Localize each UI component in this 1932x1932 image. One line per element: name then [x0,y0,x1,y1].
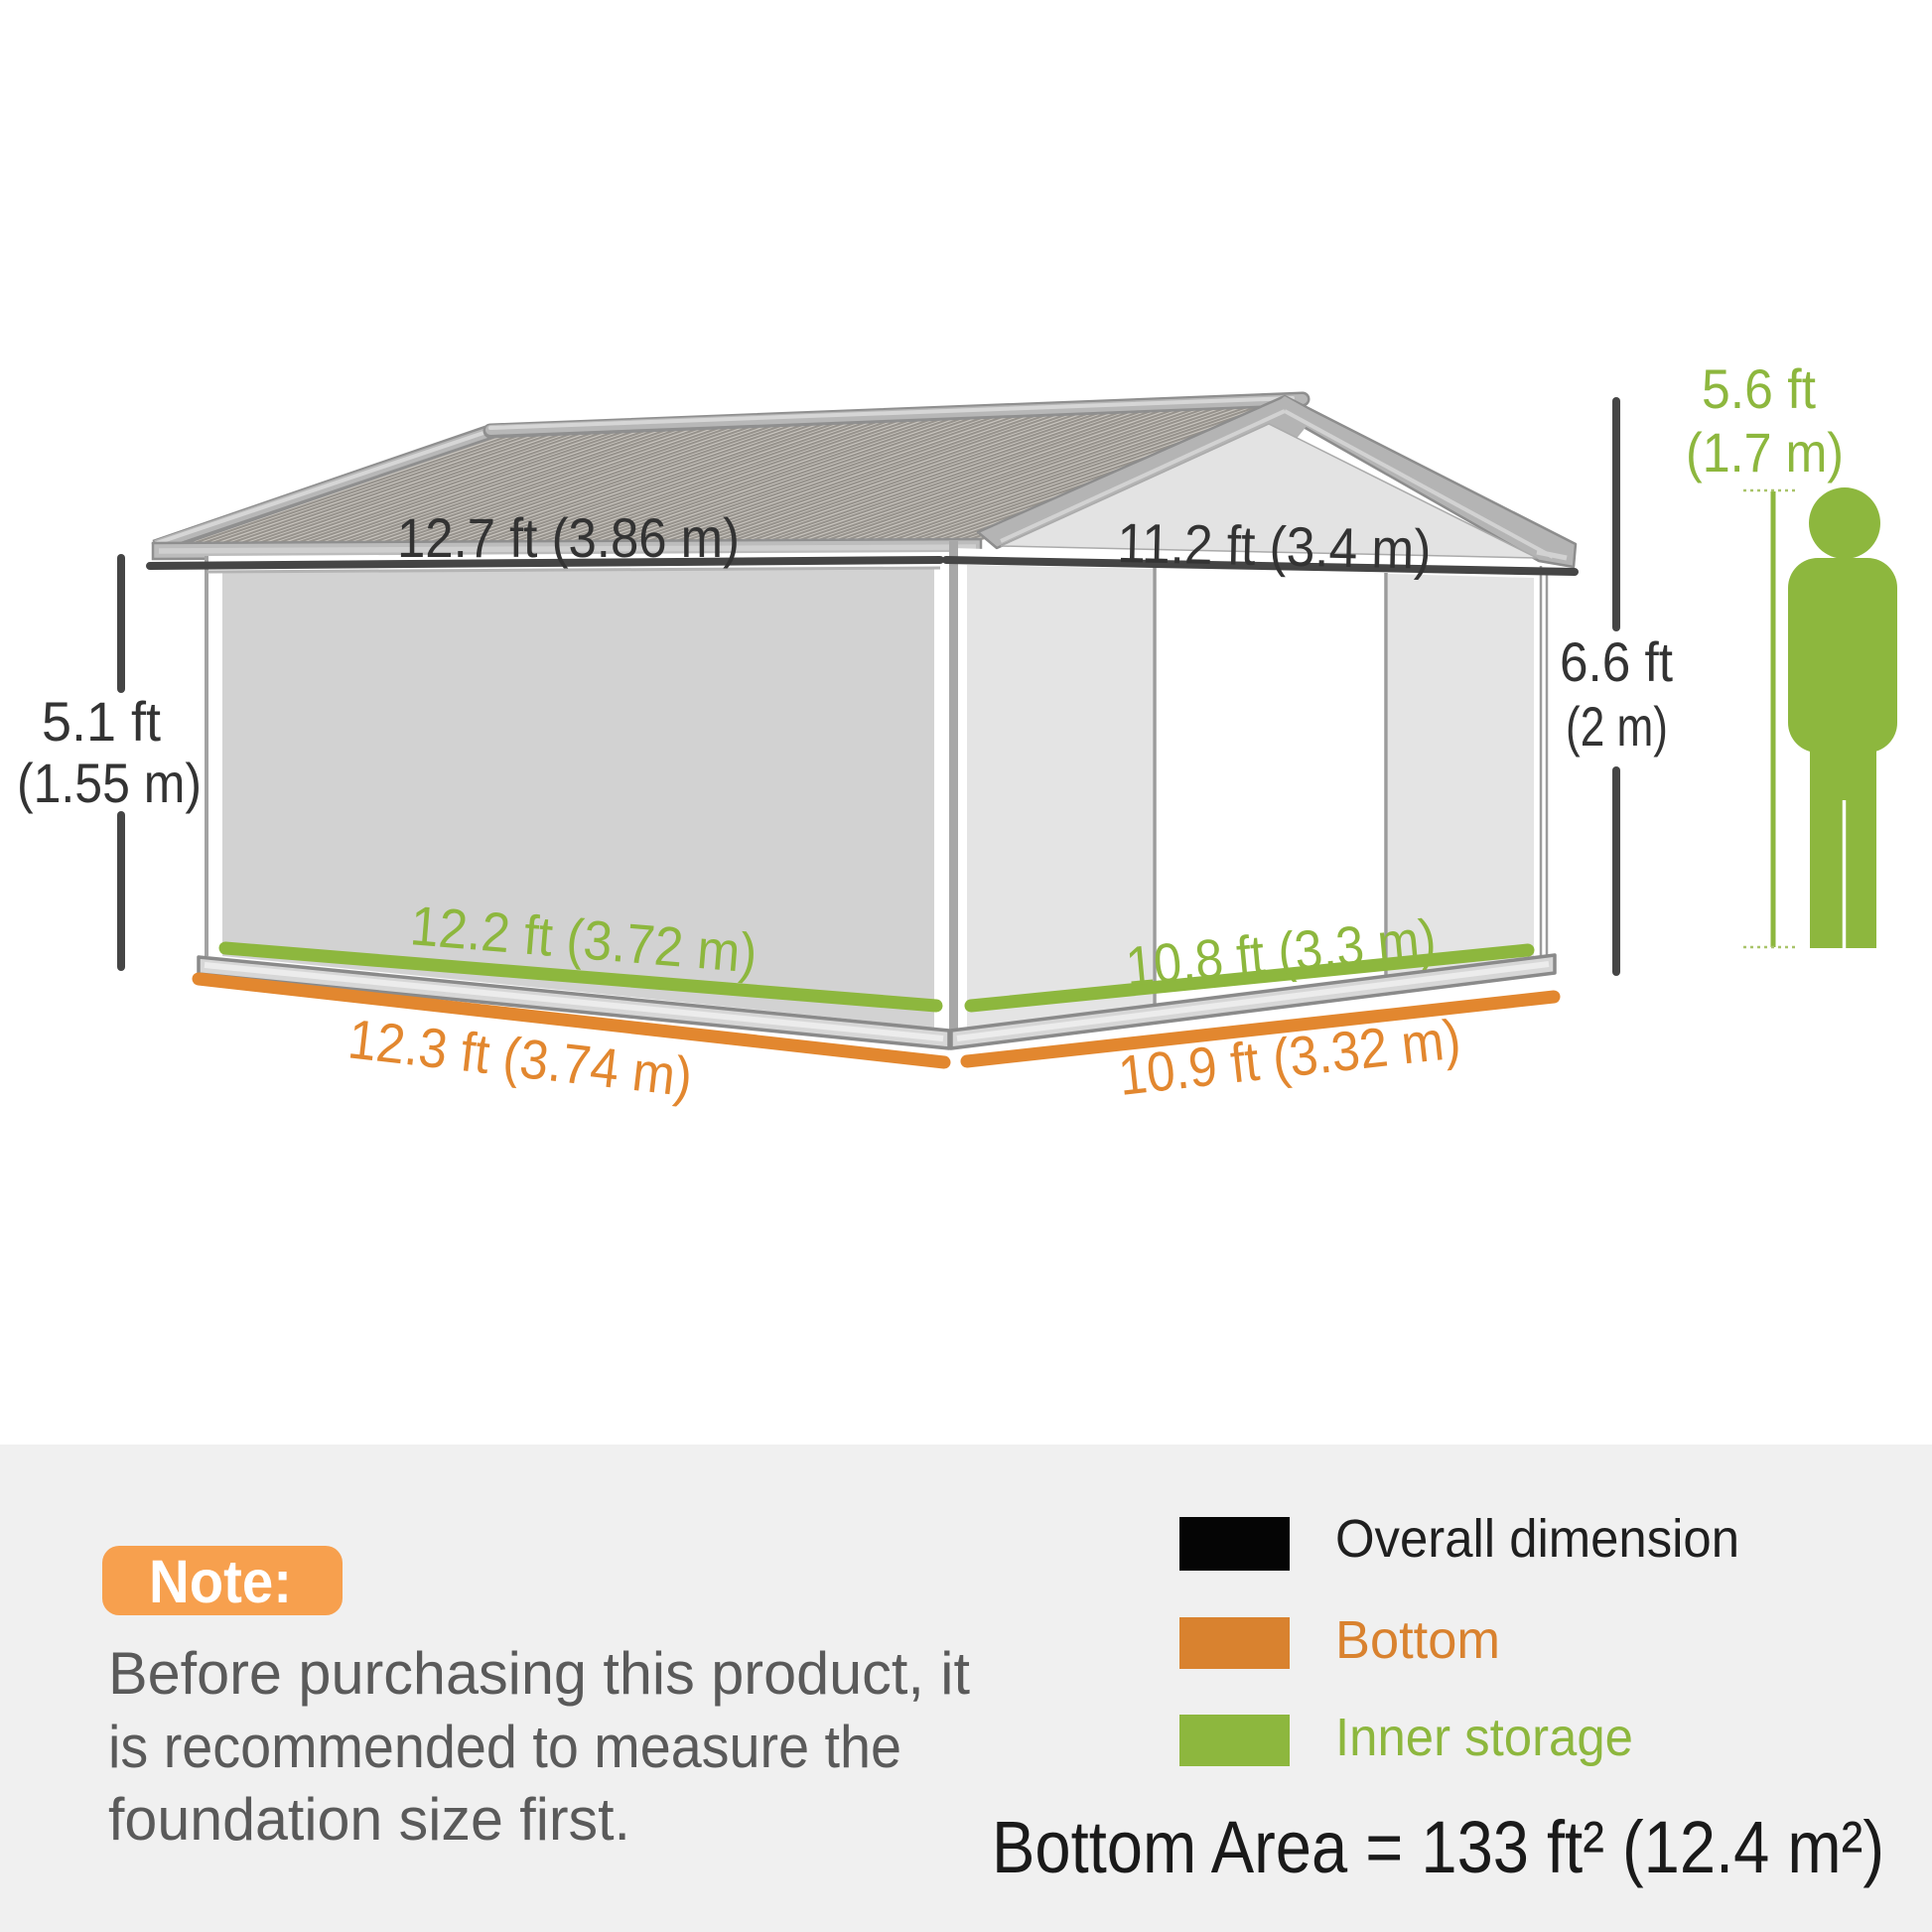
svg-text:5.1 ft: 5.1 ft [42,690,161,753]
svg-text:is recommended to measure the: is recommended to measure the [108,1714,901,1780]
svg-text:Bottom: Bottom [1335,1610,1500,1670]
svg-text:foundation size first.: foundation size first. [108,1786,630,1853]
svg-text:(2 m): (2 m) [1566,695,1668,758]
svg-text:Note:: Note: [149,1548,292,1615]
svg-text:Bottom Area = 133 ft² (12.4 m²: Bottom Area = 133 ft² (12.4 m²) [992,1806,1884,1888]
svg-text:(1.55 m): (1.55 m) [17,752,202,814]
svg-text:Before purchasing this product: Before purchasing this product, it [108,1640,970,1707]
svg-text:(1.7 m): (1.7 m) [1686,421,1844,483]
svg-text:5.6 ft: 5.6 ft [1702,357,1816,420]
svg-text:6.6 ft: 6.6 ft [1560,630,1673,693]
svg-text:11.2 ft (3.4 m): 11.2 ft (3.4 m) [1117,511,1432,581]
svg-text:Inner storage: Inner storage [1335,1708,1633,1767]
svg-text:12.7 ft (3.86 m): 12.7 ft (3.86 m) [397,506,740,569]
svg-text:Overall dimension: Overall dimension [1335,1509,1739,1569]
